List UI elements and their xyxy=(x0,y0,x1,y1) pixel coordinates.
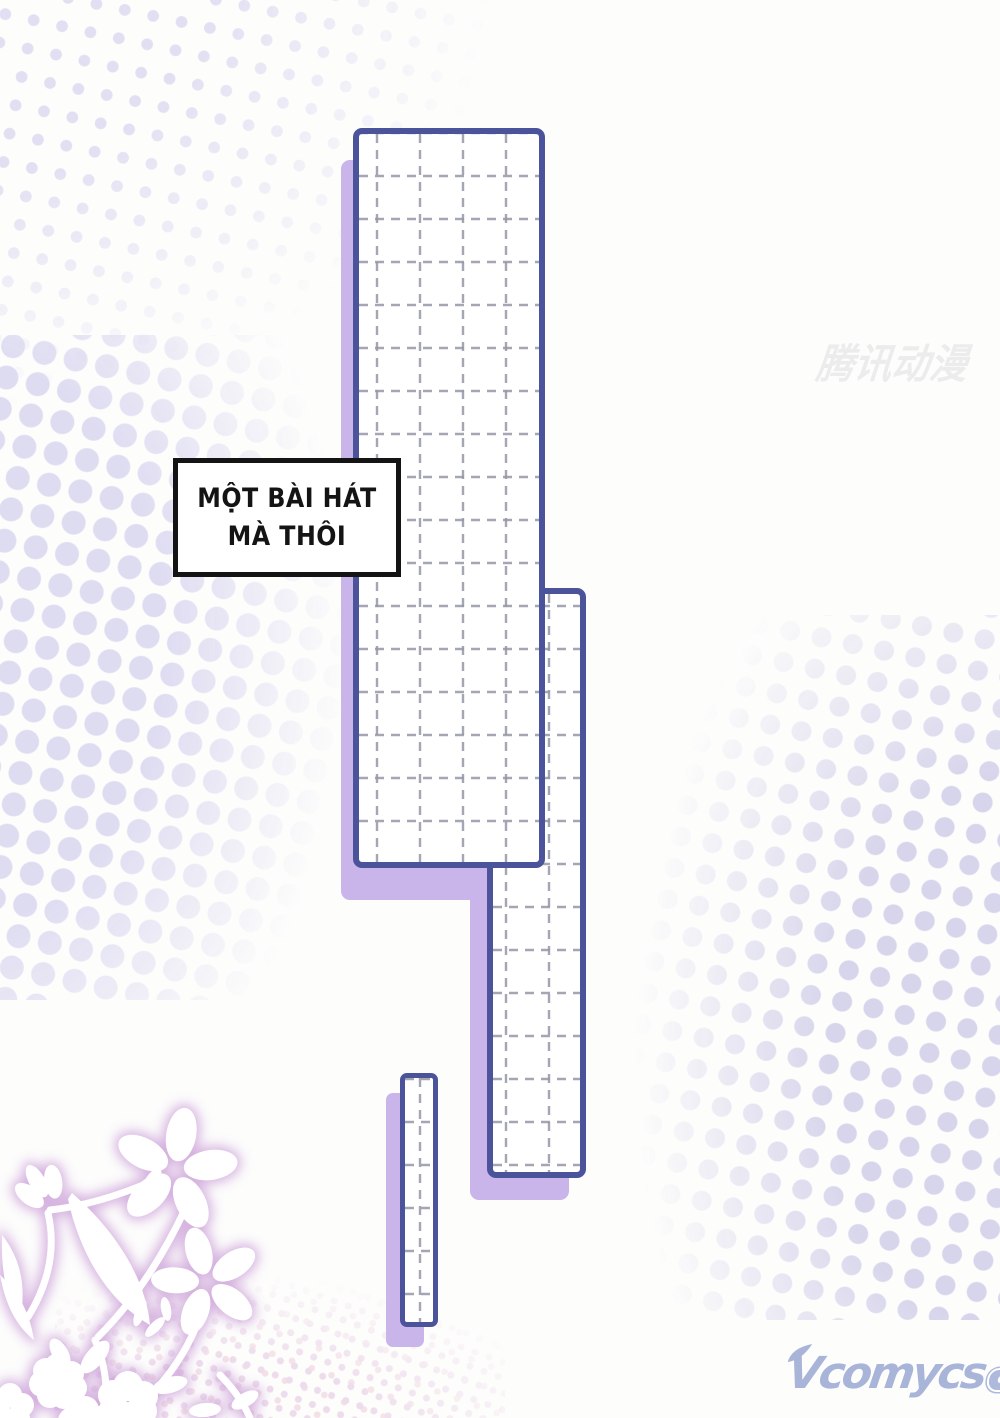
panel-small xyxy=(400,1073,438,1327)
comic-page: MỘT BÀI HÁT MÀ THÔI 腾讯动漫 xyxy=(0,0,1000,1418)
speech-box: MỘT BÀI HÁT MÀ THÔI xyxy=(173,458,401,577)
halftone-bottom-right xyxy=(570,615,1000,1320)
vcomycs-logo-tld: com xyxy=(986,1368,1000,1392)
tencent-comics-watermark: 腾讯动漫 xyxy=(814,330,971,390)
flowers-art xyxy=(0,1085,352,1418)
speech-text-line2: MÀ THÔI xyxy=(197,518,376,556)
vcomycs-logo: Vcomycs com xyxy=(788,1352,1000,1396)
flowers-decoration xyxy=(0,1085,352,1418)
panel-grid xyxy=(405,1078,433,1322)
vcomycs-logo-text: Vcomycs xyxy=(785,1352,987,1396)
leaf-icon xyxy=(785,1342,815,1368)
speech-text-line1: MỘT BÀI HÁT xyxy=(197,480,376,518)
